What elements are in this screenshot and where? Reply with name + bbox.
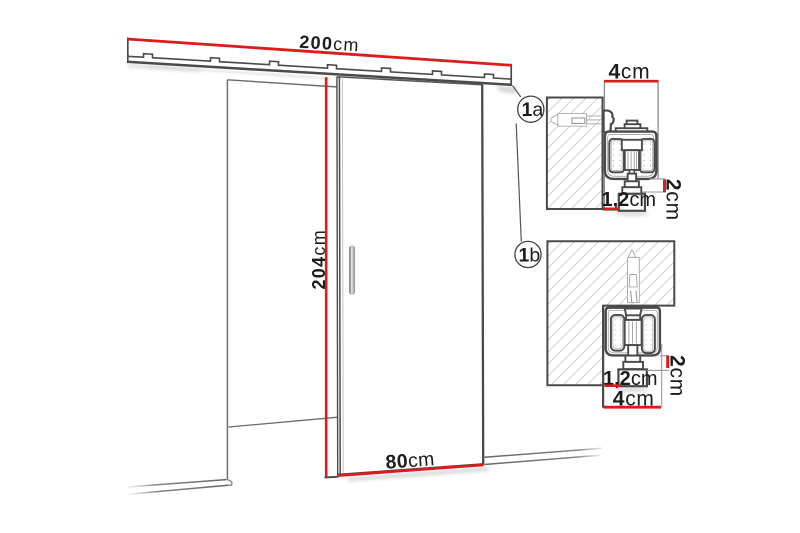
svg-text:2cm: 2cm xyxy=(662,179,685,221)
svg-text:1a: 1a xyxy=(522,99,544,121)
svg-text:200cm: 200cm xyxy=(299,32,361,55)
svg-text:1b: 1b xyxy=(519,245,541,267)
svg-text:204cm: 204cm xyxy=(309,229,329,290)
svg-text:4cm: 4cm xyxy=(609,61,651,84)
svg-text:80cm: 80cm xyxy=(385,448,436,474)
svg-text:2cm: 2cm xyxy=(665,355,688,397)
